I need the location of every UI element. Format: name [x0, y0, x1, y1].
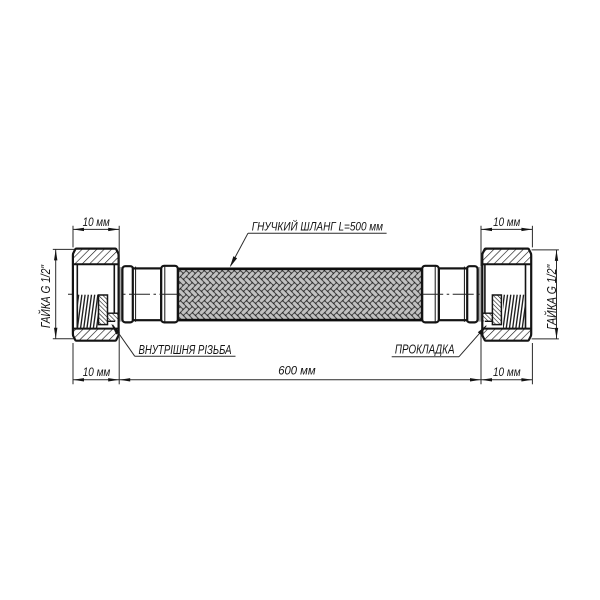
svg-text:ПРОКЛАДКА: ПРОКЛАДКА — [395, 342, 455, 357]
svg-text:600 мм: 600 мм — [278, 363, 316, 377]
svg-text:10 мм: 10 мм — [493, 365, 521, 379]
svg-text:10 мм: 10 мм — [83, 215, 111, 229]
svg-text:ГАЙКА G 1/2": ГАЙКА G 1/2" — [37, 265, 53, 328]
svg-text:10 мм: 10 мм — [83, 365, 111, 379]
svg-text:ГНУЧКИЙ ШЛАНГ L=500 мм: ГНУЧКИЙ ШЛАНГ L=500 мм — [252, 218, 384, 234]
svg-text:10 мм: 10 мм — [493, 215, 521, 229]
svg-text:ГАЙКА G 1/2": ГАЙКА G 1/2" — [543, 264, 559, 329]
svg-text:ВНУТРІШНЯ РІЗЬБА: ВНУТРІШНЯ РІЗЬБА — [139, 342, 232, 357]
